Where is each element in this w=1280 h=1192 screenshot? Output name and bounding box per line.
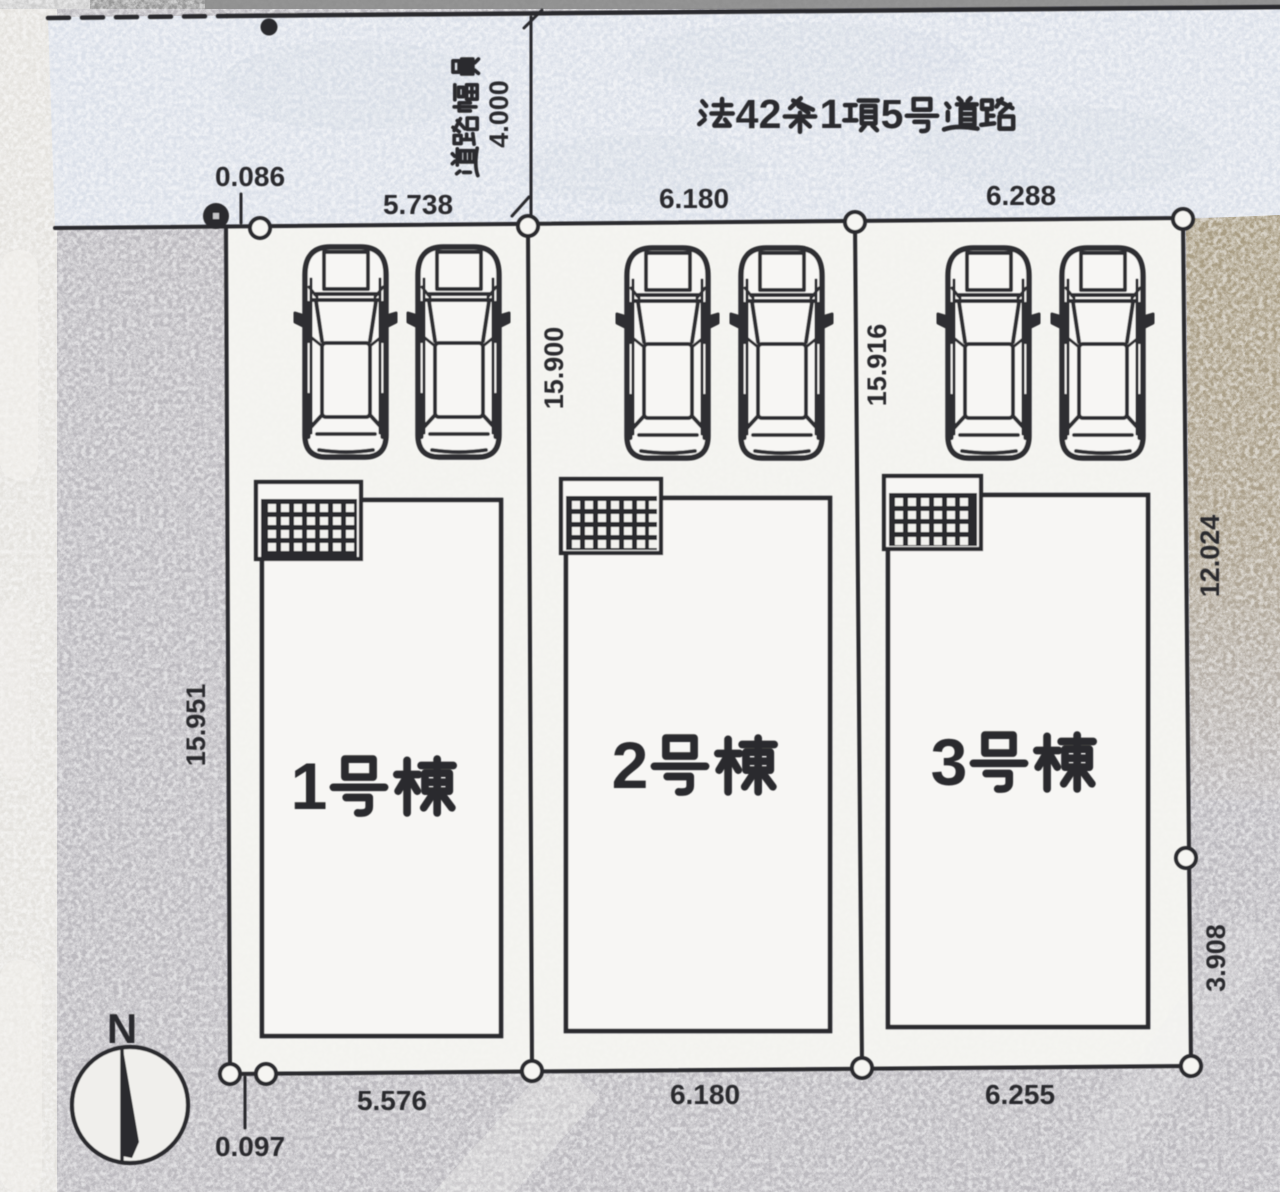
svg-text:0.097: 0.097 [215, 1131, 285, 1162]
svg-text:4.000: 4.000 [484, 80, 514, 148]
svg-text:4: 4 [736, 91, 759, 137]
svg-text:1: 1 [820, 91, 843, 137]
svg-text:6.180: 6.180 [659, 183, 729, 214]
svg-text:15.900: 15.900 [539, 327, 569, 410]
svg-text:5.576: 5.576 [357, 1085, 427, 1116]
svg-text:0.086: 0.086 [215, 161, 285, 192]
svg-text:2: 2 [759, 91, 782, 137]
svg-text:2: 2 [612, 728, 649, 802]
svg-text:5.738: 5.738 [383, 189, 453, 220]
svg-text:15.916: 15.916 [862, 324, 892, 407]
svg-text:3: 3 [931, 725, 968, 799]
svg-text:12.024: 12.024 [1195, 515, 1225, 598]
svg-text:15.951: 15.951 [181, 684, 211, 767]
svg-text:N: N [107, 1005, 137, 1052]
svg-text:5: 5 [881, 91, 904, 137]
svg-text:1: 1 [291, 749, 328, 823]
svg-text:6.180: 6.180 [670, 1079, 740, 1110]
svg-text:6.288: 6.288 [986, 180, 1056, 211]
svg-text:3.908: 3.908 [1201, 924, 1231, 992]
svg-text:6.255: 6.255 [985, 1079, 1055, 1110]
